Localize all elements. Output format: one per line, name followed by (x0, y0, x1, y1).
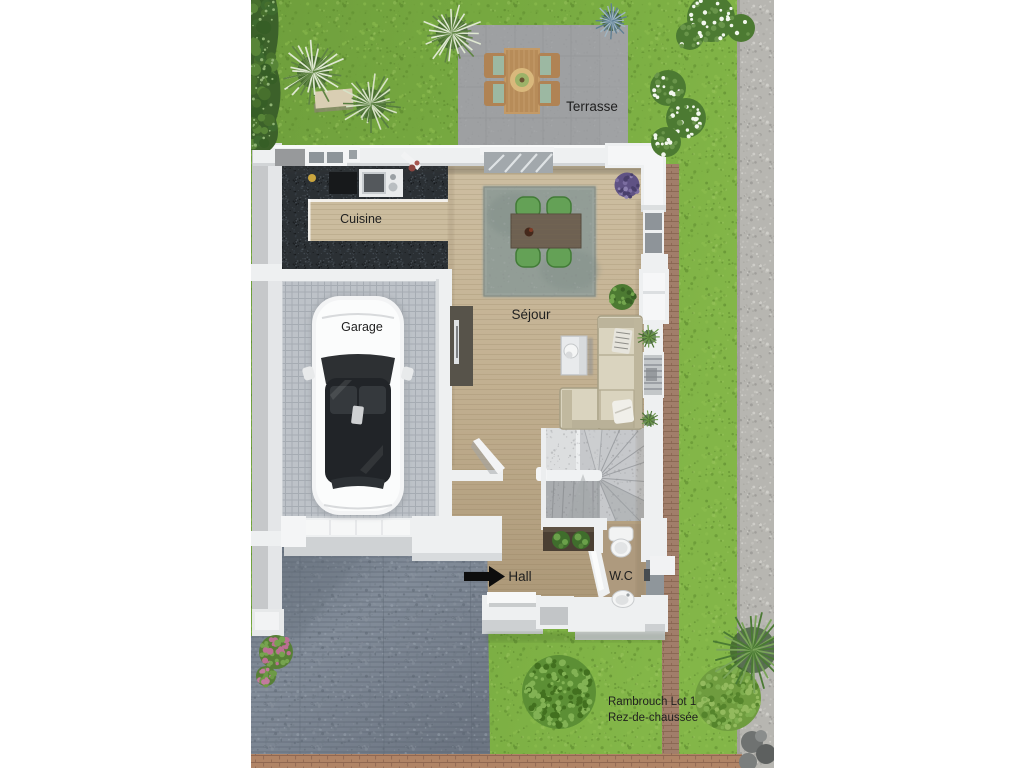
svg-text:W.C: W.C (609, 569, 633, 583)
svg-text:Rez-de-chaussée: Rez-de-chaussée (608, 712, 698, 724)
svg-text:Rambrouch Lot 1: Rambrouch Lot 1 (608, 696, 696, 708)
svg-text:Cuisine: Cuisine (340, 212, 382, 226)
svg-text:Séjour: Séjour (511, 307, 551, 322)
svg-text:Garage: Garage (341, 320, 383, 334)
svg-text:Terrasse: Terrasse (566, 99, 618, 114)
svg-text:Hall: Hall (508, 569, 531, 584)
